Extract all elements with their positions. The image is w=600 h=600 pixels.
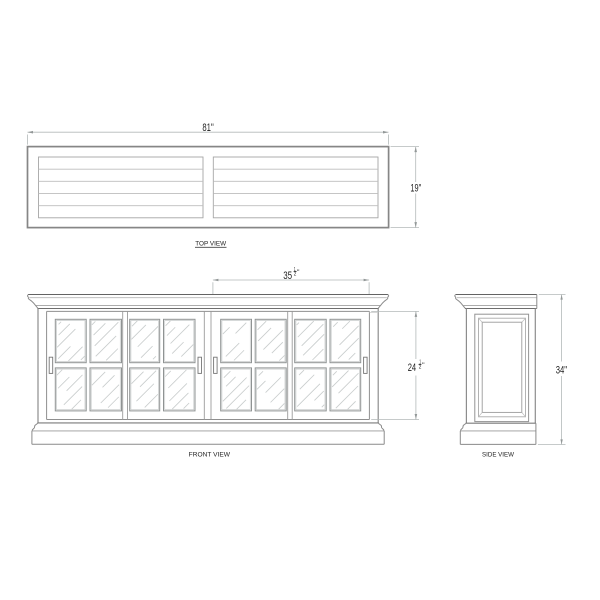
svg-text:81": 81" (202, 122, 213, 134)
svg-text:24: 24 (408, 362, 416, 374)
svg-text:19": 19" (410, 183, 421, 195)
svg-text:34": 34" (556, 365, 567, 377)
svg-text:SIDE VIEW: SIDE VIEW (482, 451, 515, 458)
svg-text:TOP VIEW: TOP VIEW (195, 240, 227, 247)
svg-text:FRONT VIEW: FRONT VIEW (189, 451, 231, 458)
svg-text:35: 35 (283, 270, 292, 282)
svg-text:2: 2 (419, 365, 422, 371)
